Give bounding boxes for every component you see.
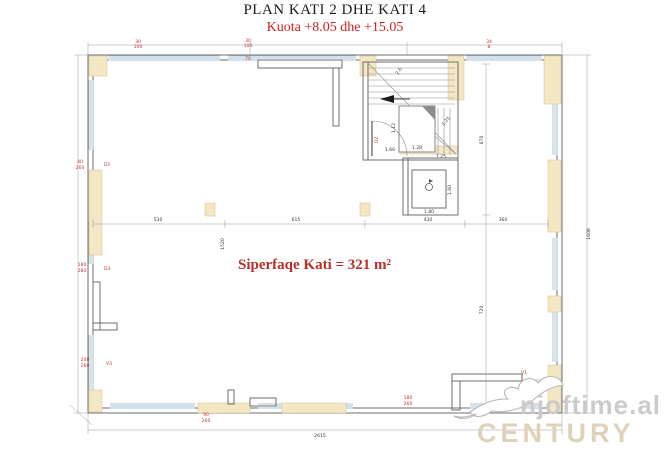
dim-text: 360 — [499, 217, 508, 223]
label-size: 100 — [134, 44, 143, 50]
label-size: 180 — [404, 395, 413, 401]
window — [553, 312, 558, 362]
elevator-dim-text: 1.80 — [424, 209, 434, 215]
label-size: 90 — [203, 412, 209, 418]
label-id: V3 — [106, 361, 112, 367]
column — [548, 160, 561, 232]
stair-dim-text: 1.28 — [412, 145, 422, 151]
bottom-label-1: 90 260 — [202, 412, 211, 424]
window — [110, 404, 195, 409]
stair-door-label: D2 — [374, 137, 380, 144]
stair-dim-text: 1.12 — [391, 123, 397, 133]
dim-text: 530 — [154, 217, 163, 223]
label-size: 100 — [244, 43, 253, 49]
column — [544, 56, 561, 104]
label-id: D1 — [104, 162, 111, 168]
window — [466, 56, 542, 61]
dim-text: 670 — [479, 136, 485, 145]
outer-walls — [88, 55, 562, 413]
column — [89, 56, 107, 76]
century21-watermark: CENTURY 21. — [477, 418, 670, 450]
bottom-label-2: 180 260 — [404, 395, 413, 407]
dimension-lines: 1608 2615 530 615 430 360 1520 670 — [70, 42, 592, 439]
elevator: 1.60 1.80 — [403, 158, 458, 215]
bottom-total-dim: 2615 — [314, 433, 326, 439]
label-size: 180 — [78, 262, 87, 268]
top-label-3: 34 8 — [486, 39, 492, 50]
column — [282, 403, 346, 413]
window — [108, 56, 220, 61]
dim-text: 615 — [292, 217, 301, 223]
dim-text: 720 — [479, 306, 485, 315]
label-id: D3 — [104, 266, 111, 272]
right-total-dim: 1608 — [586, 228, 592, 240]
label-size: 260 — [202, 418, 211, 424]
elevator-dim-text: 1.60 — [447, 185, 453, 195]
label-size: 280 — [78, 268, 87, 274]
label-size: 260 — [81, 363, 90, 369]
label-id: V1 — [521, 370, 527, 376]
page-title: PLAN KATI 2 DHE KATI 4 — [0, 2, 670, 19]
drawing-header: PLAN KATI 2 DHE KATI 4 Kuota +8.05 dhe +… — [0, 2, 670, 36]
page-subtitle: Kuota +8.05 dhe +15.05 — [0, 20, 670, 36]
window — [553, 238, 558, 290]
floor-area-label: Siperfaqe Kati = 321 m² — [238, 257, 391, 274]
column — [89, 170, 102, 255]
column — [548, 296, 561, 312]
partitions — [93, 60, 548, 410]
window-label-v3: 200 260 V3 — [81, 357, 113, 369]
stairwell: 1.28 1.12 1.25 1.25 1.66 2.6 D2 — [363, 62, 458, 160]
column — [360, 203, 370, 216]
label-size: 8 — [488, 44, 491, 50]
column — [198, 403, 250, 413]
stair-dim-text: 1.66 — [385, 147, 395, 153]
dim-text: 1520 — [220, 238, 226, 250]
column — [89, 390, 102, 412]
label-size: 260 — [404, 401, 413, 407]
label-size: 200 — [81, 357, 90, 363]
elevator-cab — [412, 170, 446, 208]
label-size: 260 — [76, 165, 85, 171]
floor-plan-drawing: 1.28 1.12 1.25 1.25 1.66 2.6 D2 1.60 1.8… — [0, 0, 670, 450]
column — [448, 56, 464, 100]
door-label-d3: 180 280 D3 — [78, 262, 111, 274]
stair-dim-text: 1.25 — [436, 154, 446, 160]
windows — [89, 56, 558, 409]
dim-text: 430 — [424, 217, 433, 223]
window — [89, 80, 94, 150]
columns — [89, 56, 561, 413]
label-size: 70 — [245, 56, 251, 62]
column — [205, 203, 215, 216]
njoftime-watermark: njoftime.al — [520, 390, 661, 421]
top-label-1: 30 100 — [134, 39, 143, 50]
floor-plan-page: 1.28 1.12 1.25 1.25 1.66 2.6 D2 1.60 1.8… — [0, 0, 670, 450]
label-size: 40 — [77, 159, 83, 165]
